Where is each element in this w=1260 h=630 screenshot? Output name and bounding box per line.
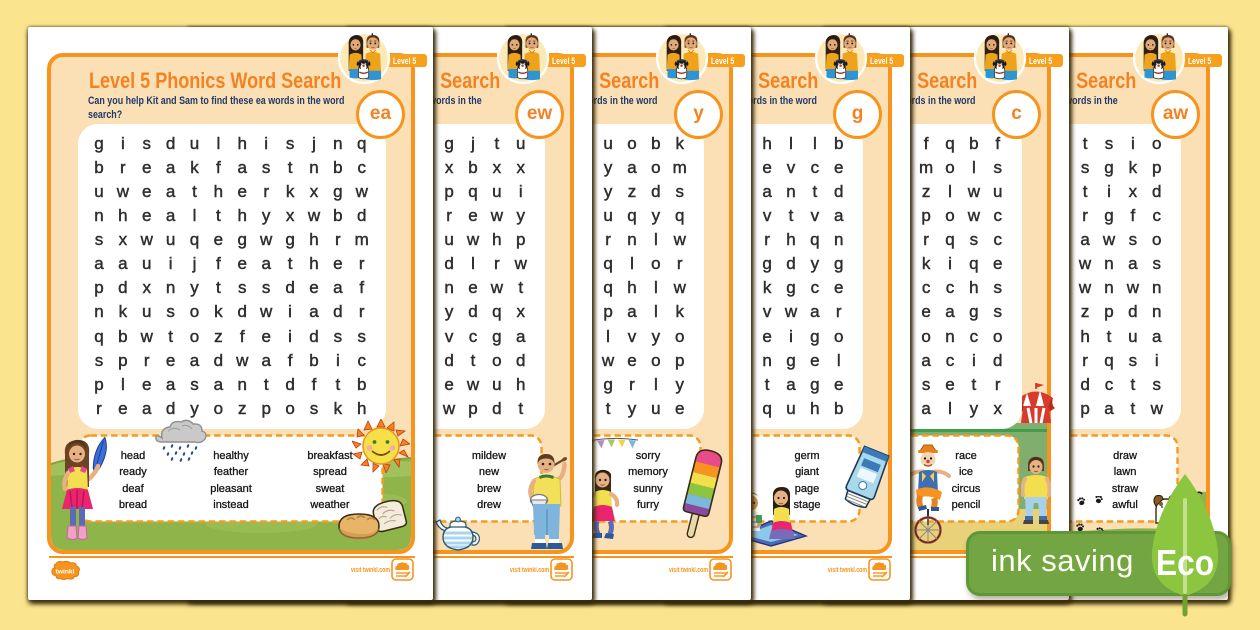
svg-text:twinkl: twinkl xyxy=(56,569,75,576)
